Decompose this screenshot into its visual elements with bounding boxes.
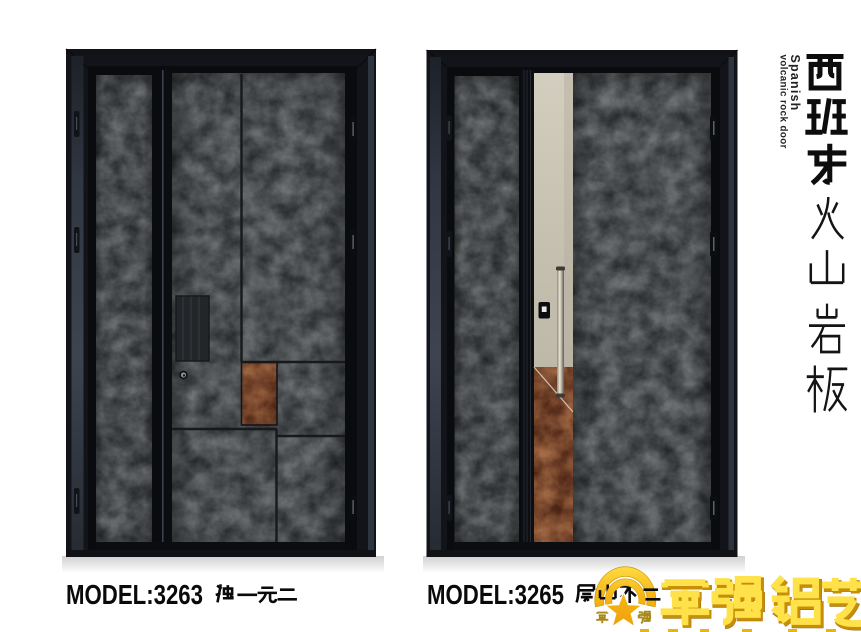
svg-text:Spanish: Spanish — [788, 55, 802, 112]
svg-text:MODEL:3265: MODEL:3265 — [427, 579, 564, 610]
svg-text:MODEL:3263: MODEL:3263 — [66, 579, 203, 610]
svg-text:volcanic rock door: volcanic rock door — [778, 55, 789, 149]
